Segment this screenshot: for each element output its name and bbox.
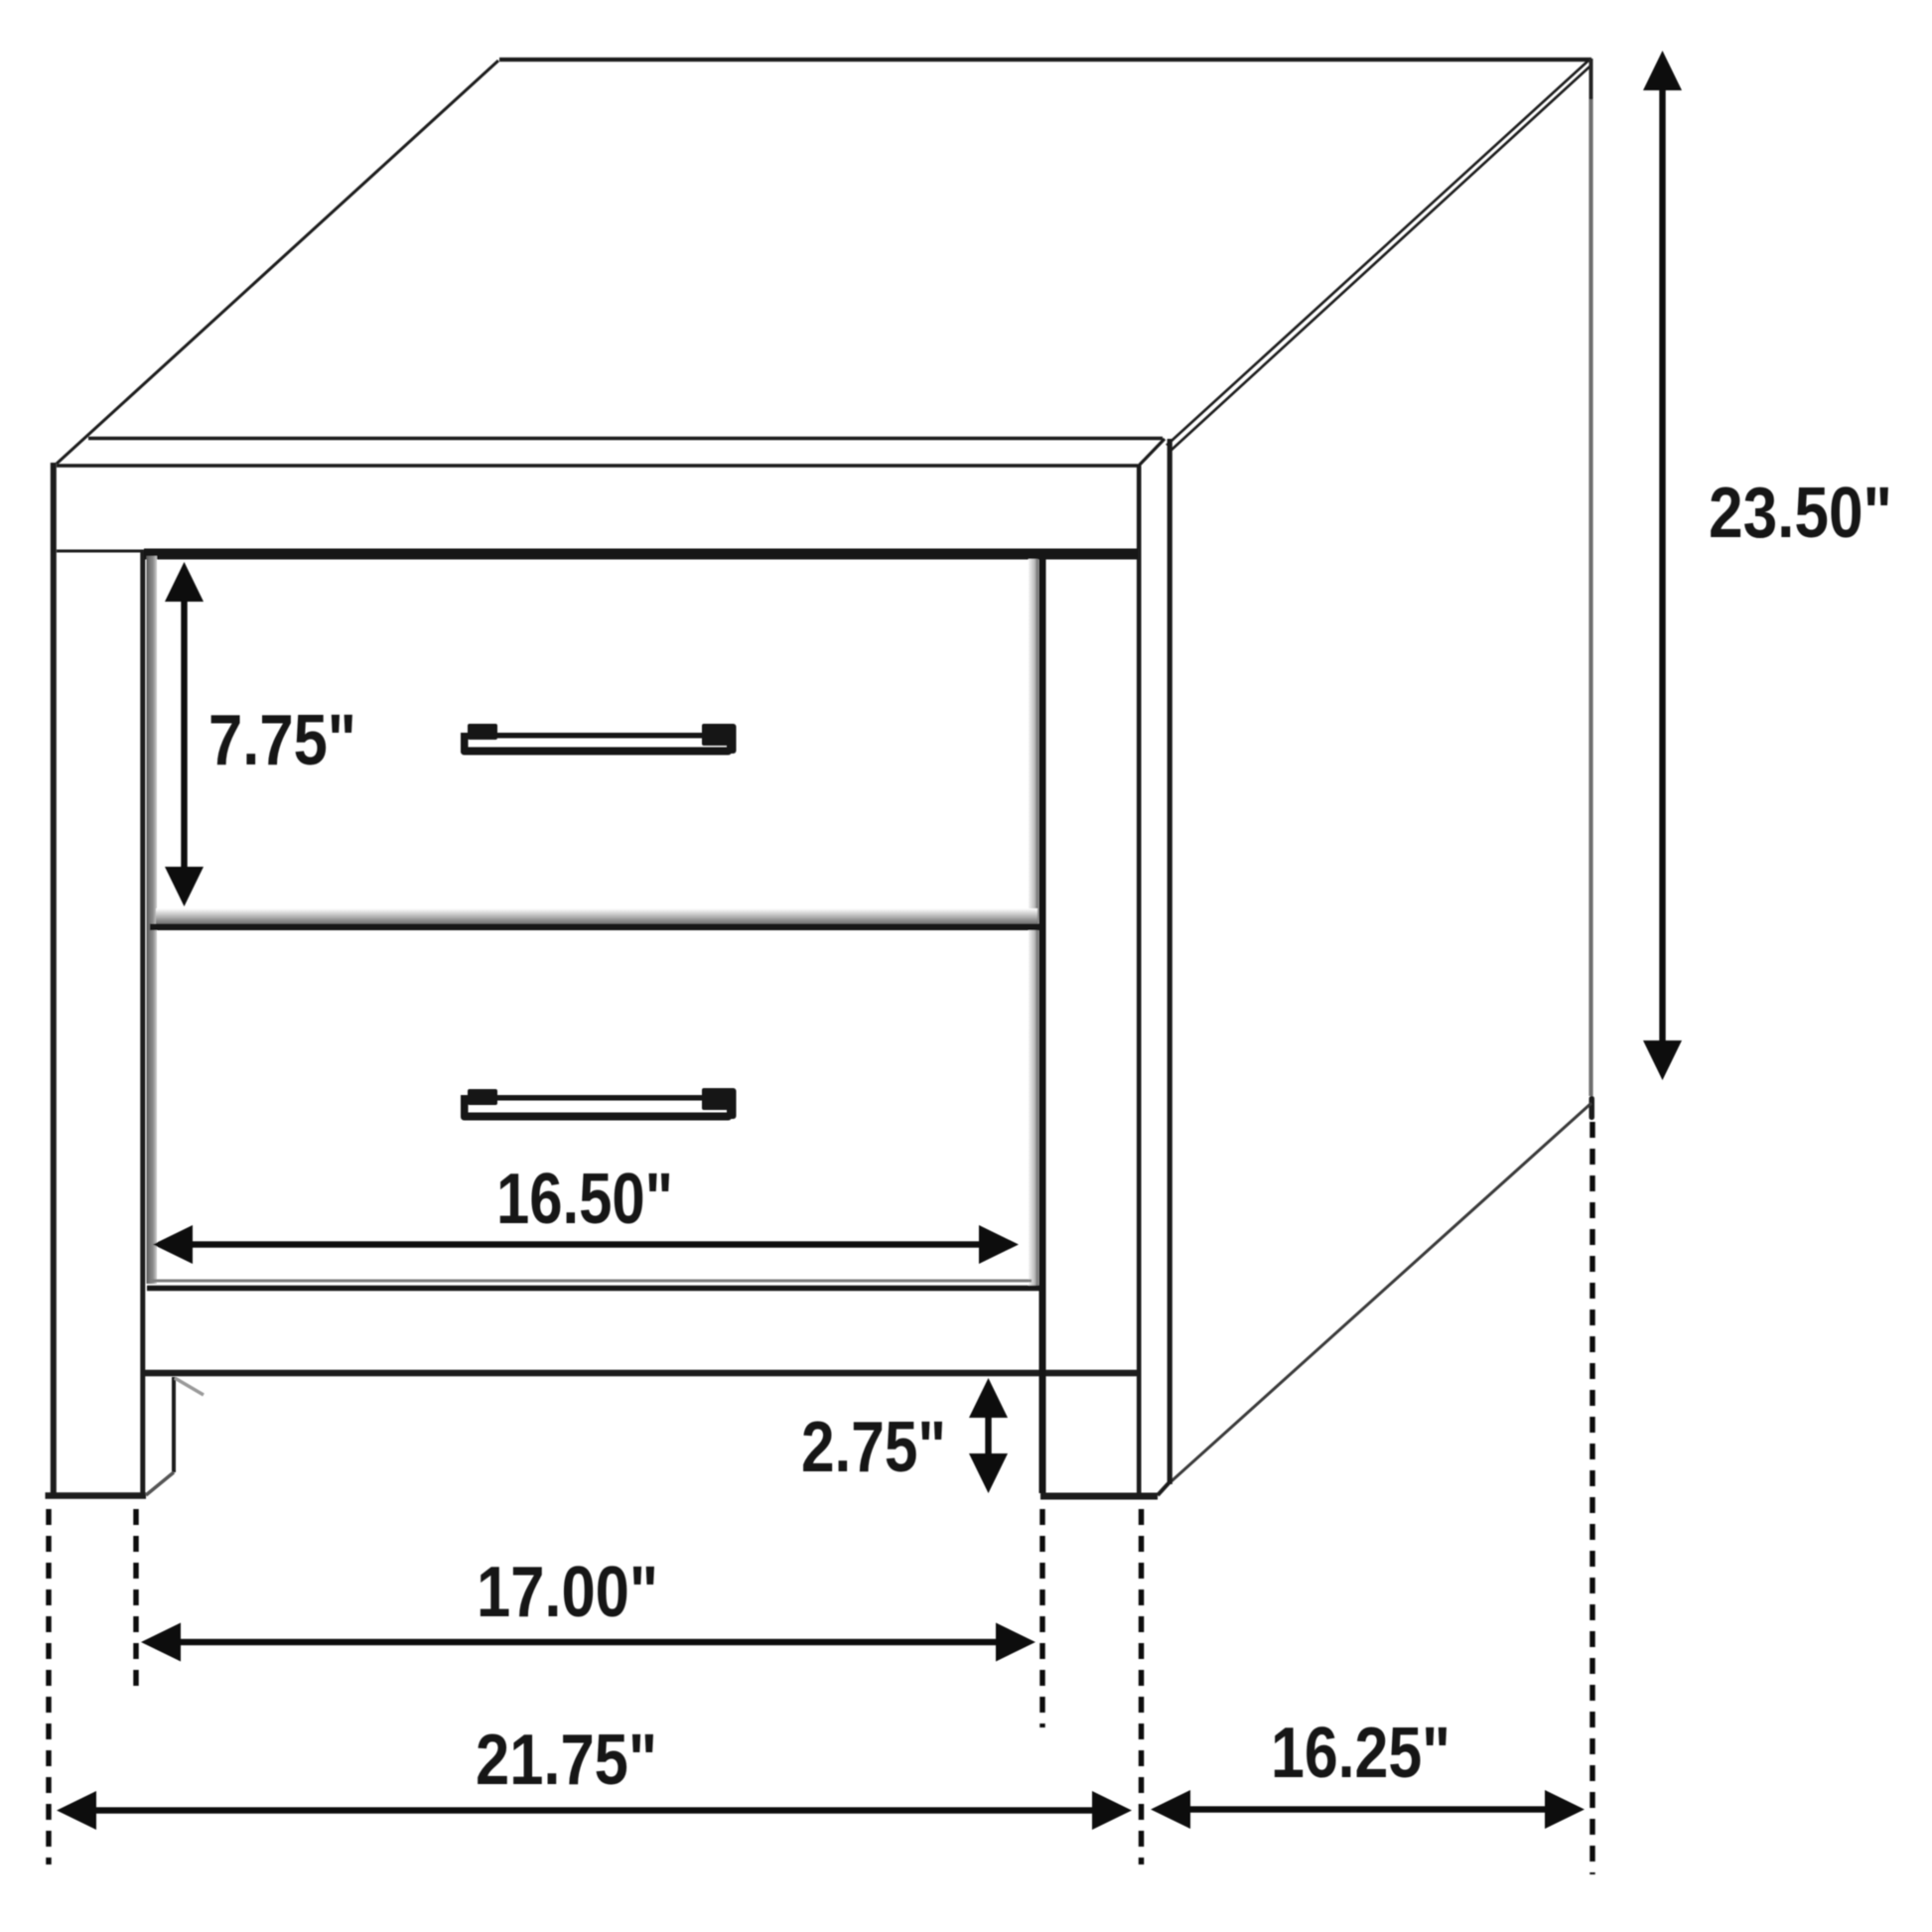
svg-text:7.75": 7.75" <box>208 701 356 780</box>
svg-text:23.50": 23.50" <box>1709 474 1892 553</box>
svg-text:21.75": 21.75" <box>476 1721 657 1800</box>
svg-text:2.75": 2.75" <box>801 1408 946 1487</box>
svg-text:16.50": 16.50" <box>496 1160 673 1239</box>
svg-text:17.00": 17.00" <box>477 1553 658 1632</box>
svg-text:16.25": 16.25" <box>1271 1714 1450 1793</box>
